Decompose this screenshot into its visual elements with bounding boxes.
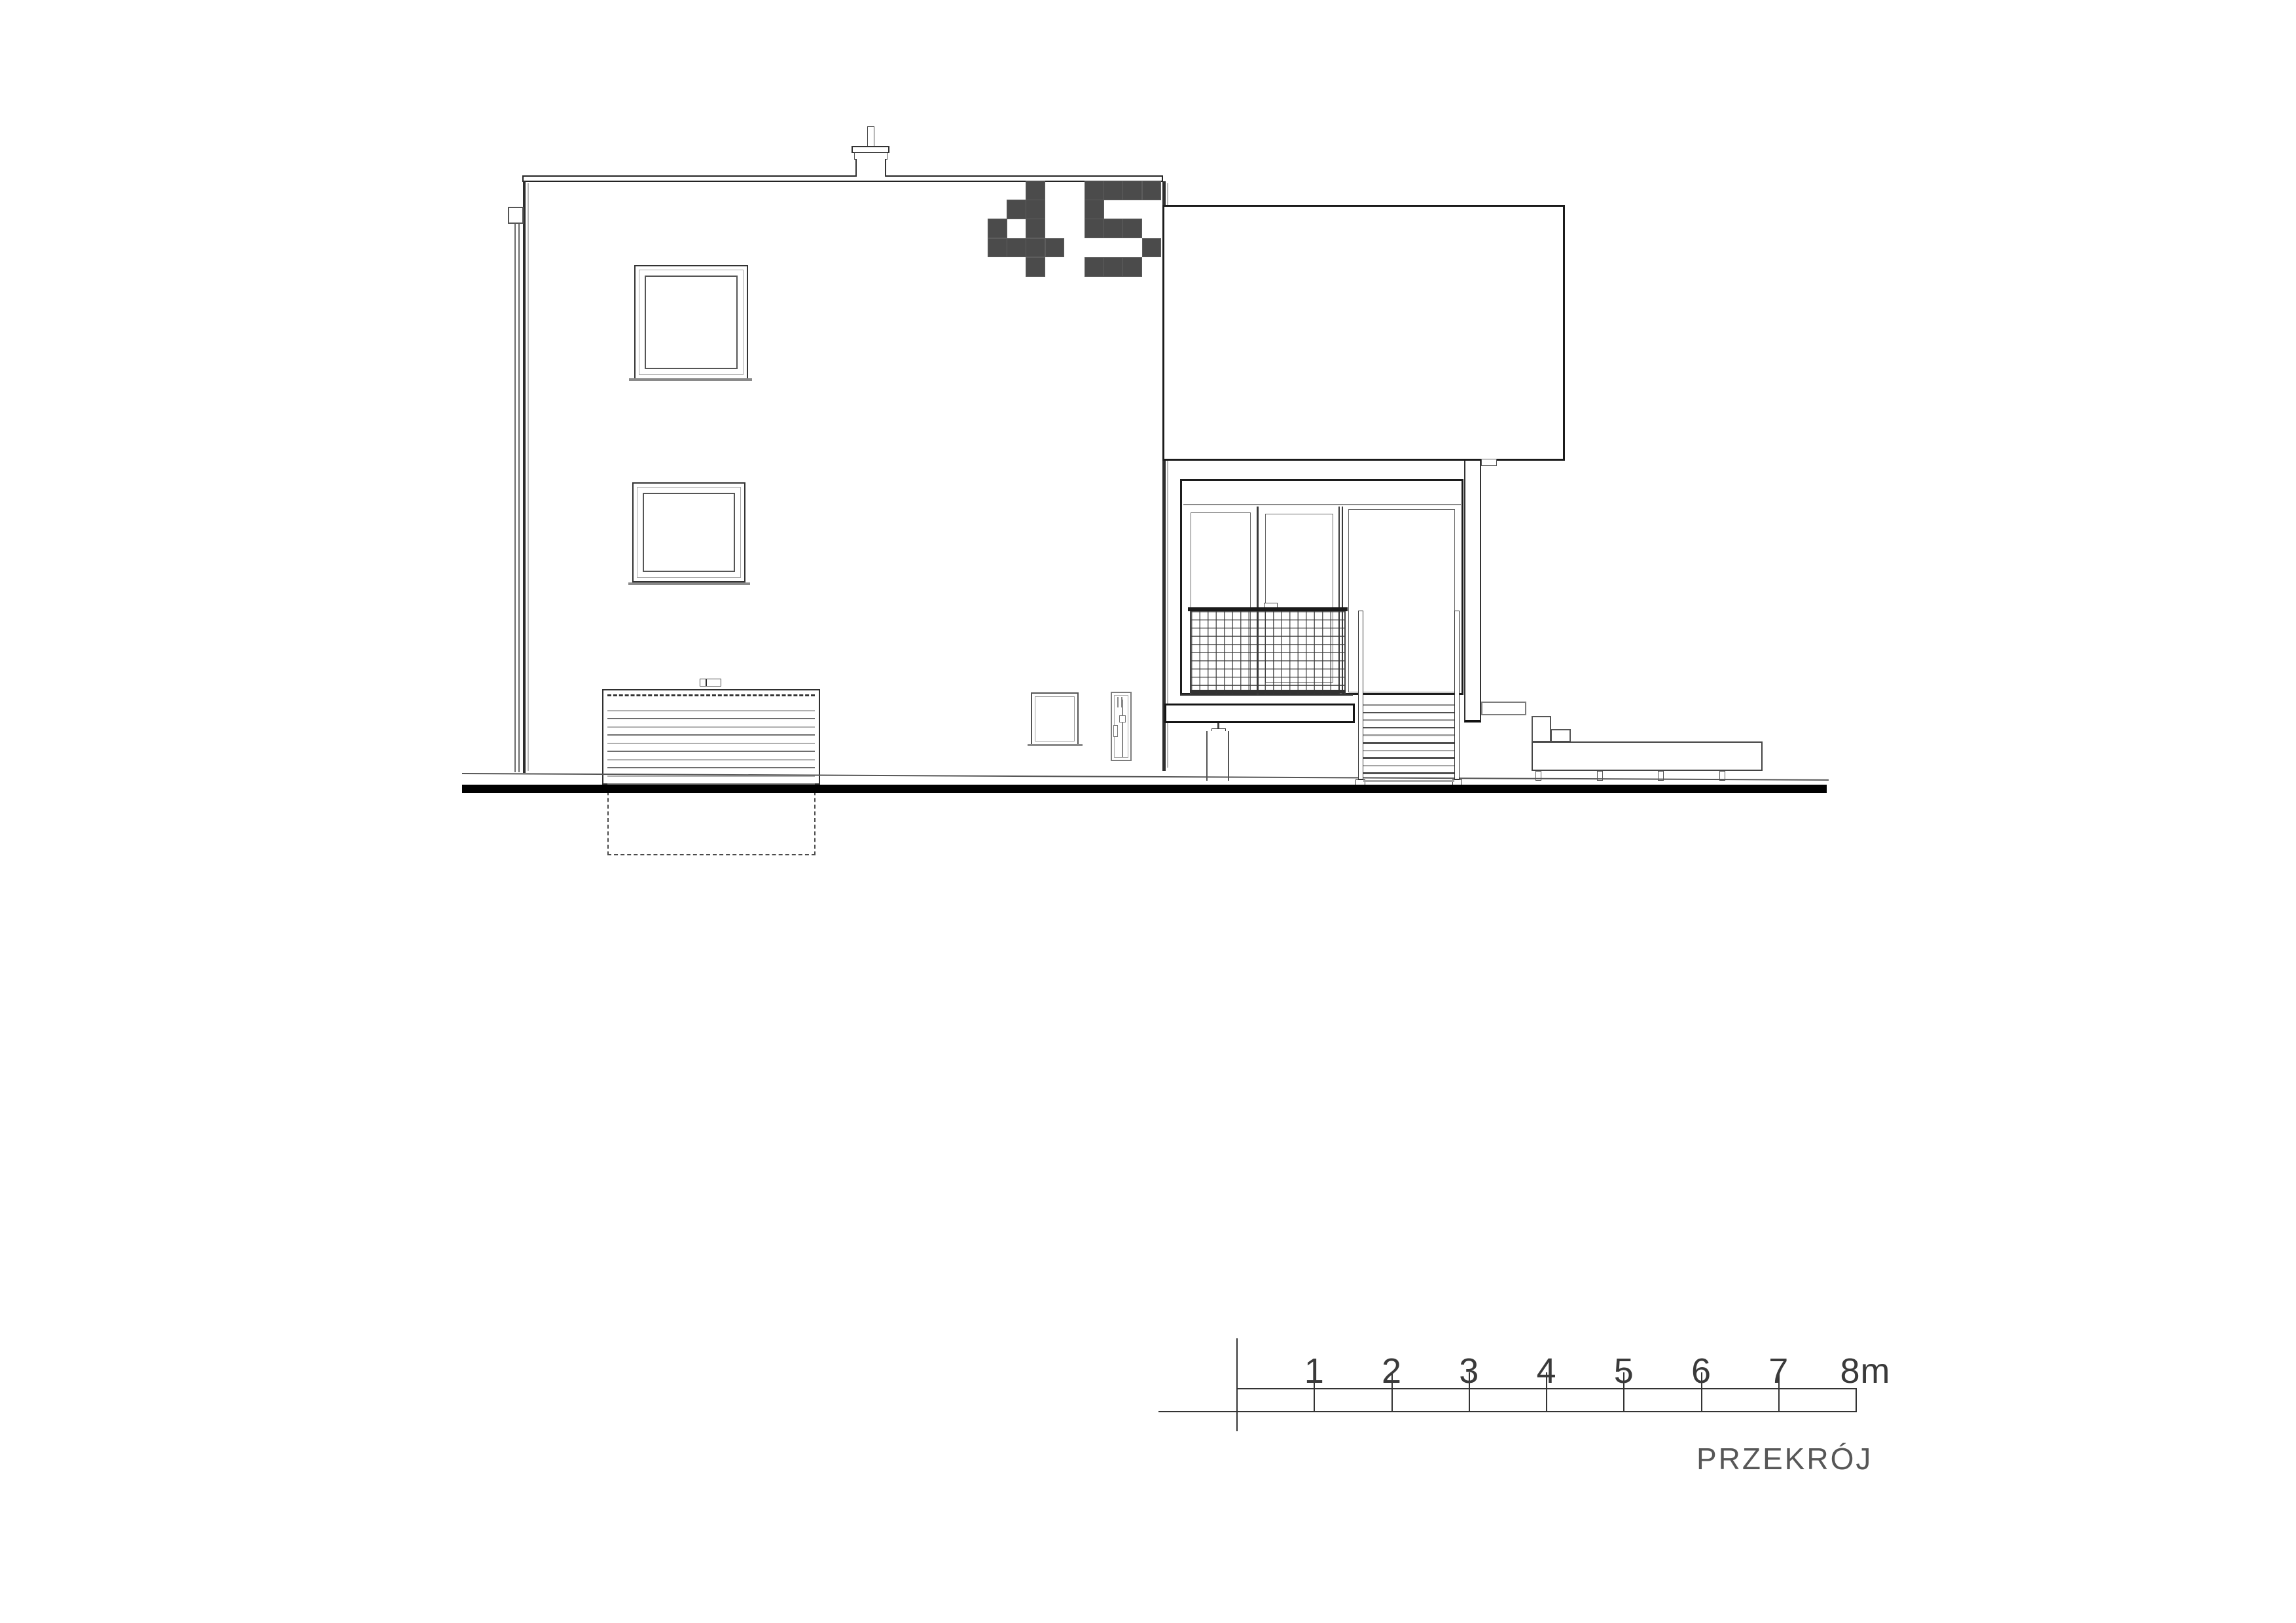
stair-riser-line	[1363, 765, 1454, 767]
lower-window	[632, 482, 745, 582]
scale-bar-tick	[1856, 1388, 1857, 1412]
lintel-line	[1183, 504, 1461, 505]
garage-door-slat-line	[607, 726, 815, 728]
scale-bar-label: 4	[1536, 1353, 1556, 1389]
garage-door-handle	[700, 679, 721, 687]
upper-window-sill	[629, 378, 752, 381]
utility-door-handle	[1113, 725, 1118, 737]
garage-handle-divider	[706, 679, 707, 686]
scale-bar-bottom-line	[1158, 1411, 1856, 1412]
stair-riser-line	[1363, 704, 1454, 706]
porch-door-right-pane	[1348, 509, 1455, 692]
house-number-pixel	[1026, 181, 1045, 200]
house-number-pixel	[1026, 219, 1045, 238]
scale-bar-label: 3	[1459, 1353, 1479, 1389]
house-number-pixel	[1142, 181, 1162, 200]
stair-riser-line	[1363, 719, 1454, 721]
stair-riser-line	[1363, 780, 1454, 782]
house-number-pixel	[1122, 181, 1142, 200]
stair-riser-line	[1363, 772, 1454, 774]
porch-floor-slab	[1164, 704, 1355, 723]
small-window	[1031, 692, 1079, 745]
stair-riser-line	[1363, 757, 1454, 759]
downpipe	[514, 224, 520, 772]
house-number-pixel	[1103, 181, 1123, 200]
garage-door-slat-line	[607, 734, 815, 736]
utility-door-hinge-line	[1117, 697, 1119, 707]
lower-window-sill	[628, 582, 750, 585]
garage-door-slat-line	[607, 718, 815, 719]
scale-bar-label: 2	[1382, 1353, 1402, 1389]
stair-post-left	[1358, 611, 1363, 779]
upper-volume	[1162, 205, 1565, 461]
stair-riser-line	[1363, 750, 1454, 752]
railing-mesh	[1190, 611, 1346, 694]
stair-post-right	[1454, 611, 1460, 779]
utility-door-lock	[1119, 715, 1126, 722]
scale-bar-label: 6	[1691, 1353, 1712, 1389]
downpipe-bracket	[508, 207, 524, 224]
house-number-pixel	[1122, 219, 1142, 238]
roof-slab	[522, 175, 1163, 182]
house-number-pixel	[1007, 200, 1026, 219]
chimney-body	[855, 159, 886, 177]
garden-step-lower	[1551, 729, 1571, 742]
scale-bar-label: 1	[1304, 1353, 1325, 1389]
facade-left-inner-line	[528, 183, 529, 771]
garden-step-upper	[1532, 716, 1551, 742]
terrace-deck	[1532, 741, 1763, 771]
lower-window-inner-frame	[643, 493, 735, 572]
elevation-drawing-sheet: 12345678m PRZEKRÓJ	[0, 0, 2296, 1623]
house-number-pixel	[1142, 238, 1162, 258]
scale-bar-label: 8m	[1840, 1353, 1890, 1389]
garage-door-slat-line	[607, 759, 815, 760]
house-number-pixel	[1026, 200, 1045, 219]
upper-window	[634, 265, 748, 380]
house-number-pixel	[1026, 257, 1045, 277]
garage-door-slat-line	[607, 743, 815, 744]
small-window-inner-frame	[1035, 696, 1075, 741]
ground-section-band	[462, 785, 1827, 793]
house-number-pixel	[1085, 200, 1104, 219]
garage-foundation-pit-dashed	[607, 785, 816, 855]
support-column	[1206, 731, 1229, 781]
house-number-pixel	[1103, 257, 1123, 277]
house-number-pixel	[1085, 219, 1104, 238]
stair-riser-line	[1363, 734, 1454, 736]
soffit-notch	[1481, 459, 1497, 466]
house-number-pixel	[1085, 181, 1104, 200]
stair-riser-line	[1363, 742, 1454, 744]
scale-bar-label: 5	[1614, 1353, 1634, 1389]
garage-door-panel	[607, 694, 815, 785]
facade-left-edge	[523, 181, 526, 773]
garage-door-slat-line	[607, 751, 815, 752]
garage-door-slat-line	[607, 710, 815, 711]
house-number-pixel	[1045, 238, 1065, 258]
porch-side-wall	[1464, 461, 1481, 722]
porch-floor-line	[1180, 694, 1353, 696]
utility-door	[1111, 692, 1132, 761]
side-ledge	[1481, 702, 1526, 715]
house-number-pixel	[1026, 238, 1045, 258]
small-window-sill	[1028, 744, 1083, 746]
house-number-pixel	[1007, 238, 1026, 258]
chimney-flue-pipe	[867, 126, 874, 147]
railing-bottom-rail	[1190, 690, 1346, 693]
house-number-pixel	[988, 238, 1007, 258]
drawing-title: PRZEKRÓJ	[1696, 1444, 1873, 1474]
railing-top-rail	[1188, 607, 1348, 611]
house-number-pixel	[1122, 257, 1142, 277]
upper-window-inner-frame	[645, 276, 738, 369]
utility-door-center-line	[1122, 700, 1123, 757]
garage-door-slat-line	[607, 767, 815, 768]
scale-bar-zero-tick	[1236, 1338, 1238, 1431]
house-number-pixel	[1085, 257, 1104, 277]
scale-bar-label: 7	[1768, 1353, 1789, 1389]
stair-riser-line	[1363, 727, 1454, 729]
house-number-pixel	[1103, 219, 1123, 238]
house-number-pixel	[988, 219, 1007, 238]
stair-riser-line	[1363, 712, 1454, 714]
